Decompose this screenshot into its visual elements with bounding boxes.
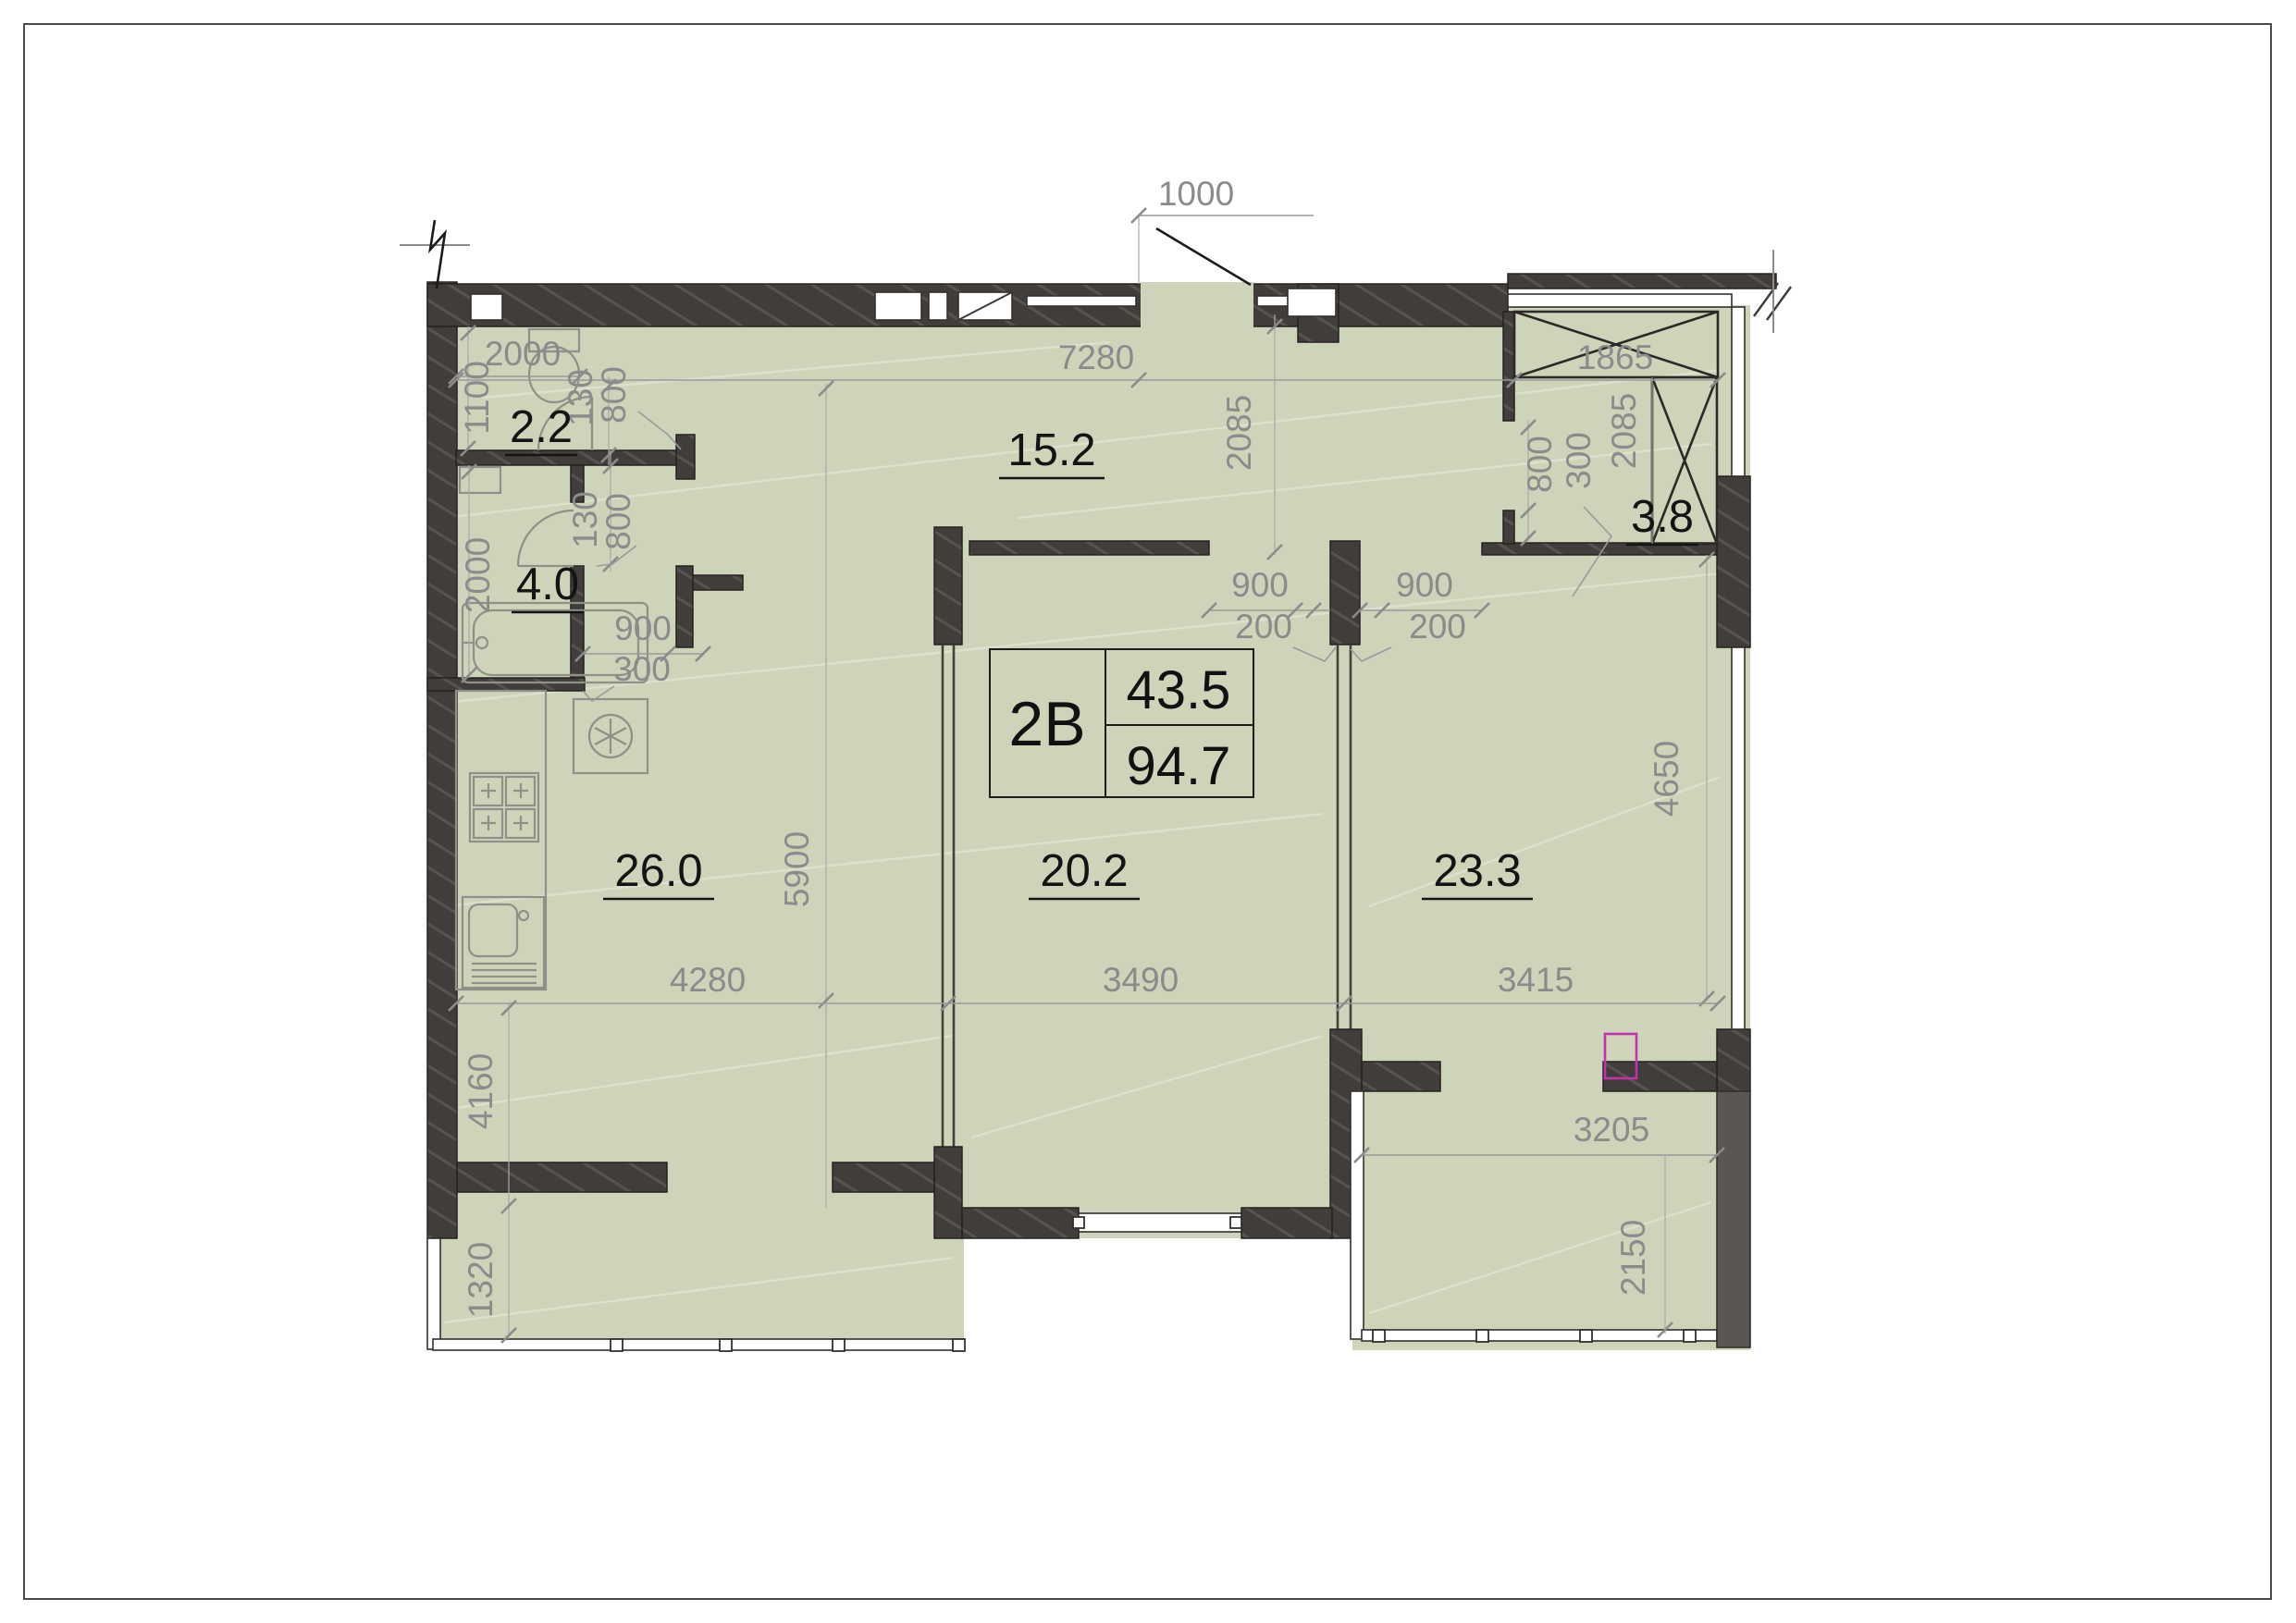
unit-area-living: 43.5 [1127,660,1231,720]
dim-4280: 4280 [670,961,746,999]
wall-wc-bottom [456,450,678,465]
room-label-bedroom-middle: 20.2 [1040,846,1128,896]
glazing-post [1580,1330,1592,1342]
wall-pier-right-lower [1717,1029,1750,1091]
wall-kitchen-bottom-left [457,1162,667,1192]
wall-pier-wc [676,435,695,479]
dim-2085-hall: 2085 [1220,395,1258,471]
dim-3490: 3490 [1103,961,1179,999]
dim-4650: 4650 [1648,741,1685,817]
floor-plan-page: 1000 7280 1865 2085 2085 2000 [0,0,2296,1623]
unit-area-total: 94.7 [1127,736,1231,796]
glazing-left-balcony [433,1339,964,1350]
unit-code: 2B [1008,689,1085,759]
glazing-post [1684,1330,1696,1342]
window-jamb-post [1230,1217,1241,1228]
wall-divider-kitchen-top [934,527,962,645]
wall-room23-bottom-right [1603,1062,1717,1091]
glazing-post [1476,1330,1488,1342]
dim-300-bath: 300 [613,650,671,688]
glazing-post [833,1339,845,1351]
dim-200-right: 200 [1409,608,1466,646]
wall-bath-bottom [427,678,585,691]
dim-3415: 3415 [1498,961,1574,999]
dim-4160: 4160 [462,1053,500,1129]
window-bedroom-balcony [1079,1213,1241,1232]
dim-800-wardrobe: 800 [1521,436,1559,493]
dim-130-mid: 130 [566,491,604,548]
glazing-post [1373,1330,1385,1342]
glazing-right-upper [1732,307,1745,476]
wall-pier-kitchen [676,566,693,647]
window-top-2 [875,292,921,320]
glazing-post [720,1339,732,1351]
entrance-opening [1141,282,1253,328]
floor-plan-drawing: 1000 7280 1865 2085 2085 2000 [0,0,2296,1623]
entrance-door-leaf [1156,228,1251,285]
dim-1865: 1865 [1577,338,1653,376]
dim-7280: 7280 [1058,338,1134,376]
entrance-door-slot-right [1257,296,1289,306]
window-top-1 [471,294,502,320]
dim-1100: 1100 [458,361,496,435]
dim-900-left: 900 [1231,566,1289,604]
dim-200-left: 200 [1235,608,1292,646]
dim-1320: 1320 [462,1242,500,1318]
break-symbol-top-right [1754,250,1791,333]
parapet-left-balcony [427,1238,440,1349]
window-top-5 [1288,289,1336,316]
dim-2085-wardrobe: 2085 [1605,393,1643,469]
glazing-top-loggia [1508,294,1732,307]
entrance-door-slot-left [1027,296,1136,306]
dim-5900: 5900 [778,831,816,907]
wall-wardrobe-left-upper [1503,312,1514,421]
room-label-wc: 2.2 [510,402,573,452]
room-label-kitchen-living: 26.0 [614,846,702,896]
window-top-3 [929,292,947,320]
parapet-right-balcony [1717,1091,1750,1347]
dim-800-top: 800 [595,366,633,424]
wall-room23-bottom-left [1362,1062,1440,1091]
wall-divider-kitchen-bottom [934,1147,962,1238]
wall-column-center [1330,541,1360,645]
wall-bedroom-bottom-left [962,1208,1079,1238]
dim-1000: 1000 [1158,175,1234,213]
room-label-hallway: 15.2 [1007,425,1095,475]
wall-kitchen-bottom-right [833,1162,934,1192]
dim-800-mid: 800 [599,493,637,550]
room-label-wardrobe: 3.8 [1631,492,1694,542]
break-symbol-top-left [400,220,470,289]
wall-top-right-band [1508,274,1776,289]
wall-exterior-left [427,282,457,1238]
wall-hall-bedroom [969,541,1209,555]
dim-2000-wc: 2000 [485,335,561,373]
dim-2150: 2150 [1614,1220,1652,1296]
wall-wardrobe-left-lower [1503,510,1514,544]
wall-bedroom-bottom-right [1241,1208,1332,1238]
wall-pier-right-upper [1717,476,1750,647]
room-label-bedroom-right: 23.3 [1433,846,1521,896]
room-label-bathroom: 4.0 [516,559,579,609]
wall-stub-kitchen [693,575,743,590]
dim-300-wardrobe: 300 [1560,432,1598,489]
dim-900-right: 900 [1396,566,1453,604]
window-jamb-post [1073,1217,1084,1228]
glazing-right-balcony-left [1351,1091,1364,1339]
glazing-post [611,1339,623,1351]
glazing-right-lower [1732,647,1745,1029]
glazing-post [953,1339,965,1351]
dim-2000-bath: 2000 [459,537,497,613]
void-between-balconies [964,1238,1352,1351]
dim-3205: 3205 [1574,1111,1649,1149]
dim-900-bath: 900 [614,609,672,647]
